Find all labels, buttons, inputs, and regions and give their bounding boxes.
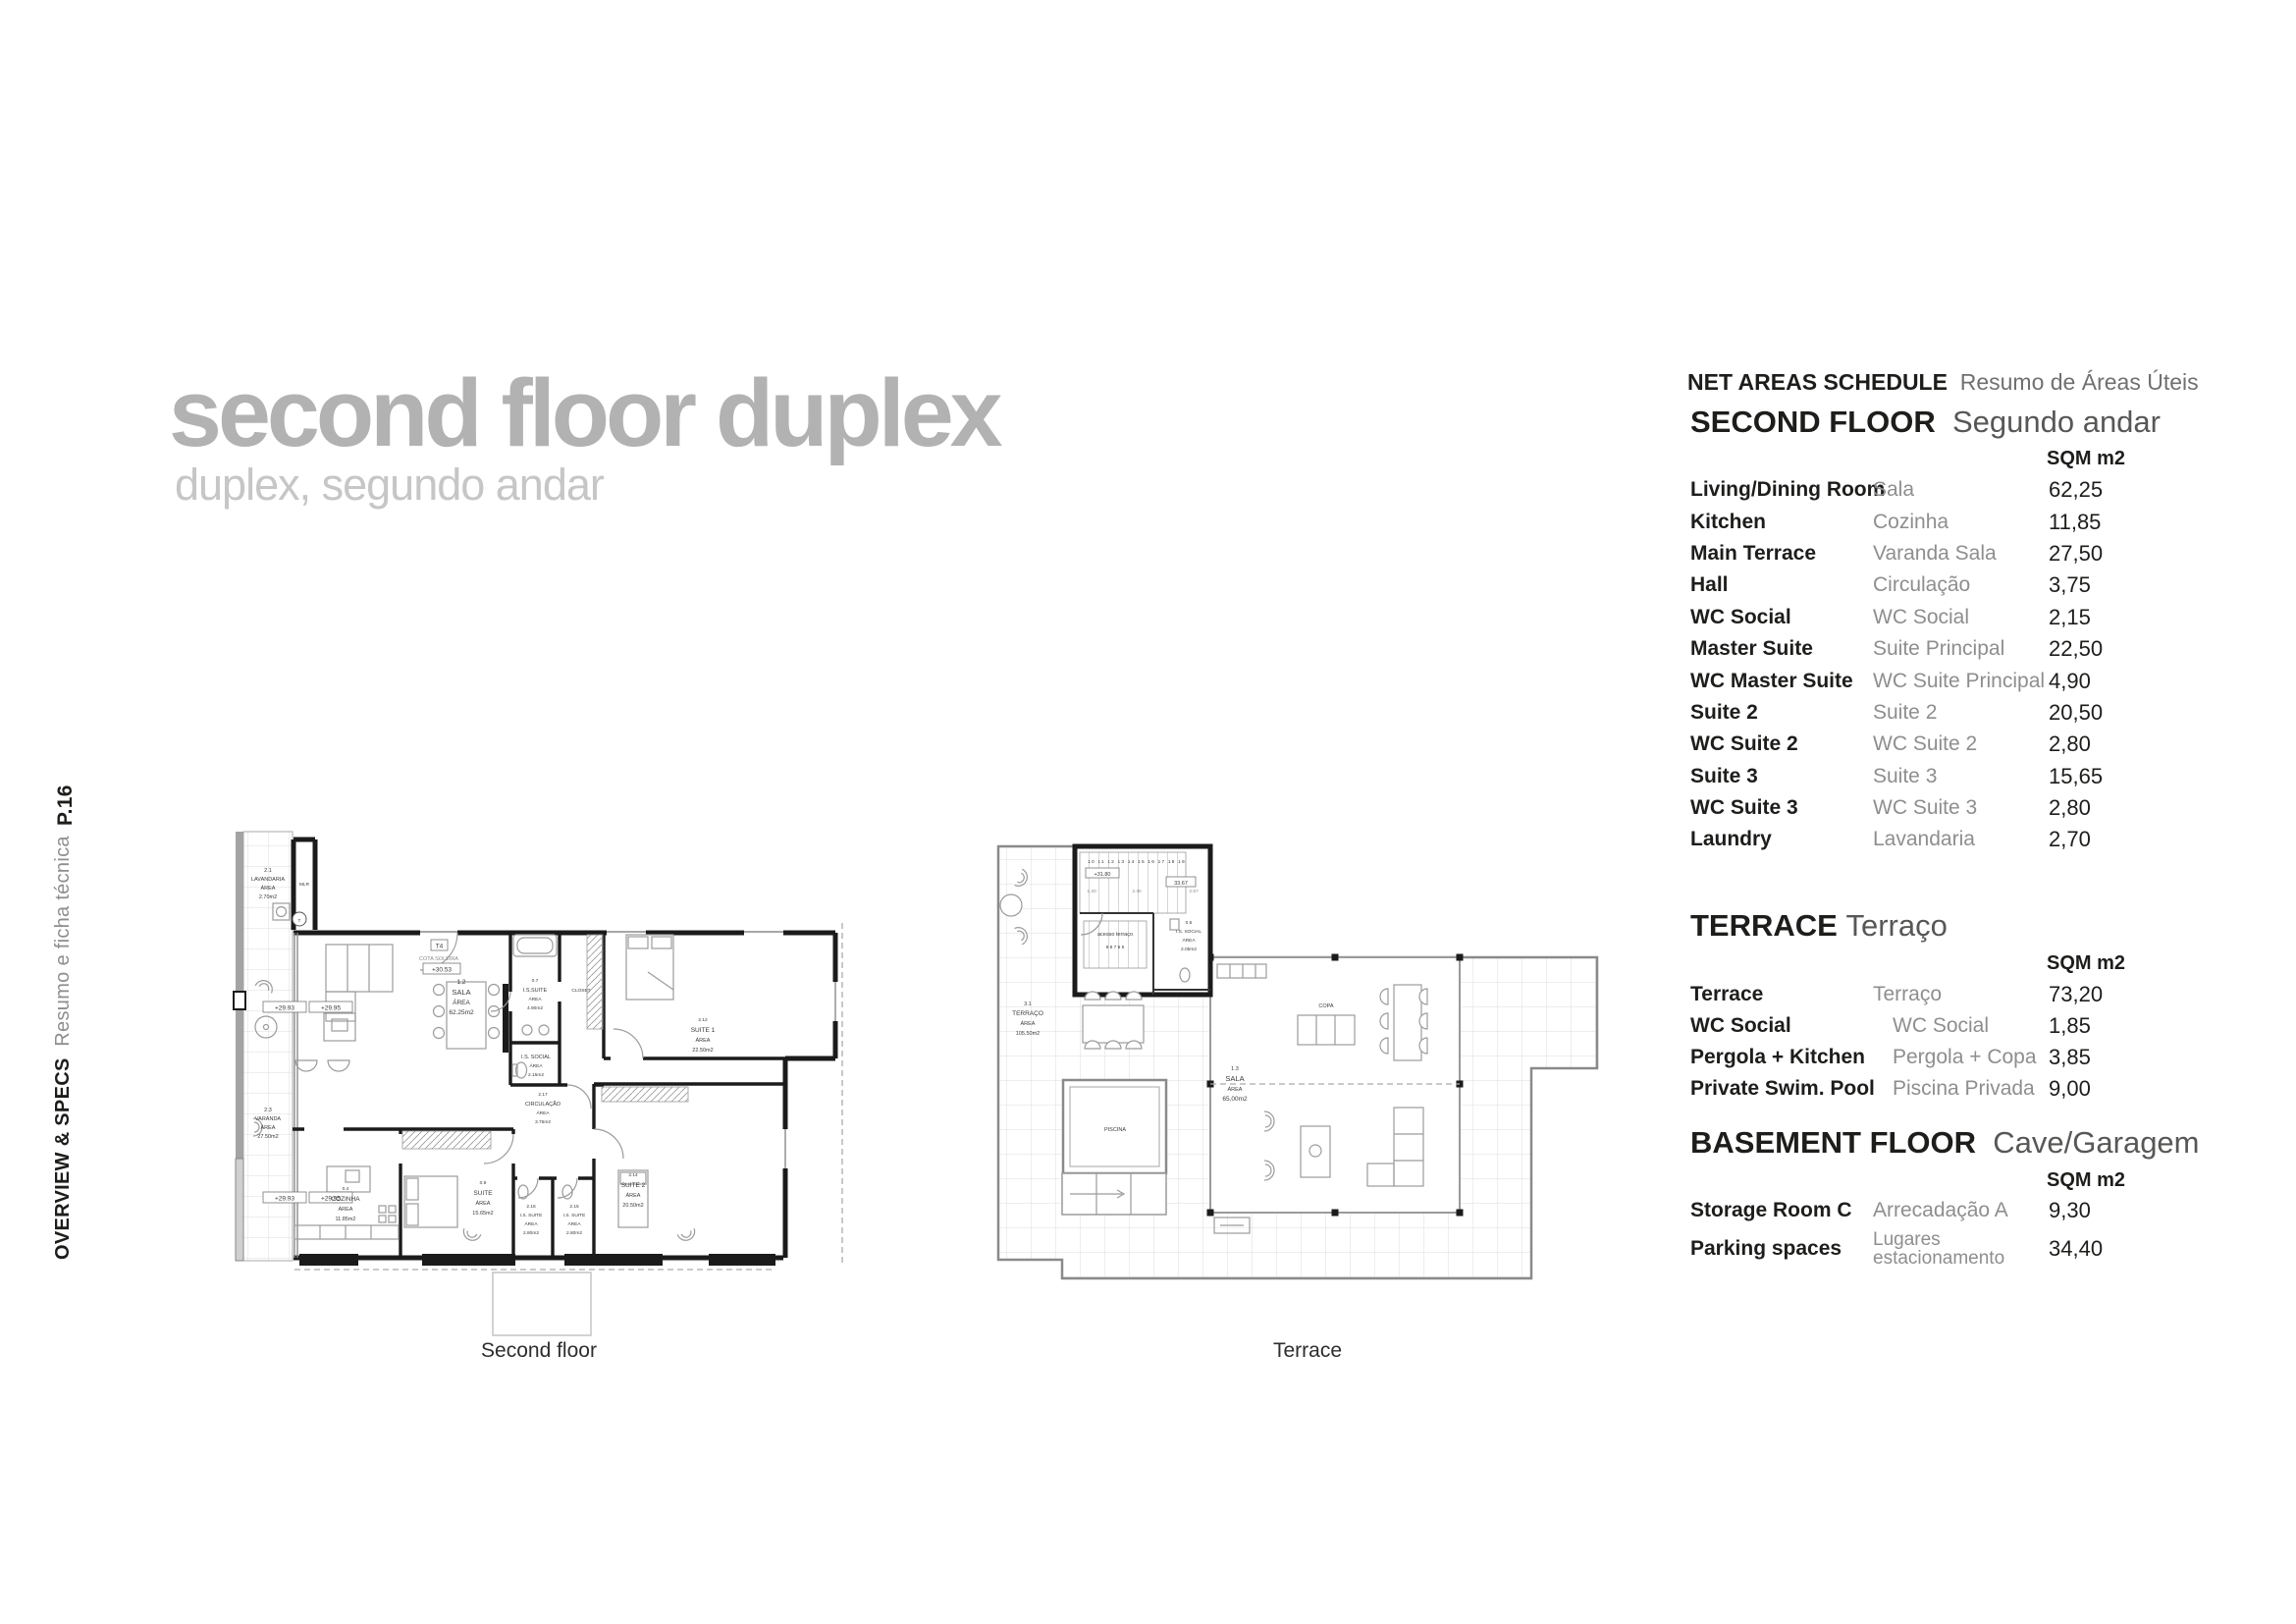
svg-text:ÁREA: ÁREA (1228, 1086, 1243, 1093)
svg-text:2.67: 2.67 (1189, 889, 1199, 894)
page-number: P.16 (54, 783, 78, 826)
room-name-pt: WC Social (1873, 1014, 2049, 1038)
table-row: WC Master SuiteWC Suite Principal4,90 (1690, 665, 2279, 696)
svg-text:VARANDA: VARANDA (255, 1116, 282, 1122)
sidebar-section-label: OVERVIEW & SPECS Resumo e ficha técnica (52, 892, 75, 1260)
svg-text:T: T (298, 918, 301, 924)
section-title-terrace: TERRACE Terraço (1690, 908, 1948, 944)
svg-text:0.4: 0.4 (343, 1186, 349, 1192)
table-row: Storage Room CArrecadação A9,30 (1690, 1195, 2279, 1226)
svg-text:ÁREA: ÁREA (476, 1200, 491, 1207)
svg-text:ÁREA: ÁREA (626, 1192, 641, 1199)
dim-badge: 33.67 (1174, 881, 1188, 887)
room-area-value: 2,80 (2049, 731, 2279, 757)
table-row: WC SocialWC Social1,85 (1690, 1010, 2279, 1042)
section-title-basement: BASEMENT FLOOR Cave/Garagem (1690, 1125, 2200, 1161)
outdoor-dining-table (1083, 1005, 1144, 1043)
room-area-value: 73,20 (2049, 982, 2279, 1007)
table-row: Living/Dining RoomSala62,25 (1690, 474, 2279, 506)
svg-text:1.20: 1.20 (1087, 889, 1096, 894)
section-title-en: TERRACE (1690, 908, 1838, 943)
svg-text:2.05m2: 2.05m2 (1181, 947, 1197, 952)
svg-text:I.S. SUITE: I.S. SUITE (563, 1213, 586, 1218)
room-name-pt: Pergola + Copa (1873, 1046, 2049, 1069)
table-row: KitchenCozinha11,85 (1690, 506, 2279, 537)
table-row: WC Suite 3WC Suite 32,80 (1690, 792, 2279, 824)
svg-text:3.1: 3.1 (1024, 1001, 1032, 1007)
svg-text:T4: T4 (436, 944, 444, 950)
room-area-value: 11,85 (2049, 510, 2279, 535)
svg-text:ÁREA: ÁREA (261, 1124, 276, 1131)
floor-body (294, 931, 835, 1260)
svg-text:2.40: 2.40 (1132, 889, 1142, 894)
svg-text:1.3: 1.3 (1231, 1066, 1239, 1072)
brochure-page: second floor duplex duplex, segundo anda… (0, 0, 2296, 1624)
level-badge: +31.80 (1095, 872, 1111, 878)
plan-caption-second-floor: Second floor (431, 1339, 647, 1363)
room-name-pt: WC Suite Principal (1873, 670, 2049, 693)
section-title-second-floor: SECOND FLOOR Segundo andar (1690, 405, 2161, 440)
room-area-value: 9,00 (2049, 1076, 2279, 1102)
svg-text:MLR: MLR (299, 882, 310, 888)
svg-text:COTA SOLEIRA: COTA SOLEIRA (419, 956, 458, 962)
room-name-en: WC Social (1690, 606, 1873, 629)
svg-text:SUITE: SUITE (473, 1190, 493, 1197)
room-name-pt: Sala (1873, 478, 2049, 502)
swimming-pool: PISCINA (1062, 1080, 1166, 1215)
svg-text:+30.53: +30.53 (432, 967, 452, 974)
svg-text:0.5: 0.5 (1186, 920, 1193, 926)
svg-text:2.1: 2.1 (264, 868, 272, 874)
svg-text:+29.95: +29.95 (321, 1005, 341, 1012)
svg-text:2.3: 2.3 (264, 1108, 272, 1113)
room-area-value: 27,50 (2049, 541, 2279, 567)
svg-text:TERRAÇO: TERRAÇO (1012, 1010, 1043, 1017)
room-name-en: WC Suite 2 (1690, 732, 1873, 756)
room-name-en: WC Master Suite (1690, 670, 1873, 693)
room-area-value: 2,70 (2049, 827, 2279, 852)
room-name-en: Master Suite (1690, 637, 1873, 661)
room-name-en: Suite 2 (1690, 701, 1873, 725)
room-area-value: 62,25 (2049, 477, 2279, 503)
section-title-pt: Cave/Garagem (1993, 1125, 2199, 1160)
svg-text:22.50m2: 22.50m2 (692, 1048, 713, 1054)
page-title: second floor duplex (169, 365, 999, 460)
room-area-value: 9,30 (2049, 1198, 2279, 1223)
svg-text:CIRCULAÇÃO: CIRCULAÇÃO (525, 1101, 561, 1108)
table-row: Suite 2Suite 220,50 (1690, 697, 2279, 729)
basement-table: Storage Room CArrecadação A9,30 Parking … (1690, 1195, 2279, 1272)
svg-text:SUITE 1: SUITE 1 (691, 1027, 716, 1034)
svg-text:CLOSET: CLOSET (571, 988, 590, 994)
room-area-value: 3,85 (2049, 1045, 2279, 1070)
room-area-value: 3,75 (2049, 572, 2279, 598)
stair-block: 10 11 12 13 14 15 16 17 18 19 +31.80 33.… (1075, 846, 1210, 995)
room-name-en: WC Social (1690, 1014, 1873, 1038)
table-row: LaundryLavandaria2,70 (1690, 824, 2279, 855)
second-floor-table: Living/Dining RoomSala62,25 KitchenCozin… (1690, 474, 2279, 856)
svg-text:ÁREA: ÁREA (529, 1062, 543, 1069)
section-title-en: BASEMENT FLOOR (1690, 1125, 1976, 1160)
terrace-plan: 10 11 12 13 14 15 16 17 18 19 +31.80 33.… (989, 840, 1608, 1292)
room-area-value: 22,50 (2049, 636, 2279, 662)
svg-text:ÁREA: ÁREA (536, 1110, 550, 1116)
svg-text:ÁREA: ÁREA (453, 998, 470, 1006)
svg-text:2.14: 2.14 (628, 1172, 638, 1178)
room-name-pt: Varanda Sala (1873, 542, 2049, 566)
room-name-pt: Lavandaria (1873, 828, 2049, 851)
side-table (1000, 894, 1022, 916)
toilet (1180, 968, 1190, 982)
svg-text:1.2: 1.2 (456, 979, 465, 986)
svg-text:15.65m2: 15.65m2 (472, 1211, 493, 1217)
sqm-column-header: SQM m2 (2047, 953, 2125, 973)
table-row: WC Suite 2WC Suite 22,80 (1690, 729, 2279, 760)
svg-text:ÁREA: ÁREA (524, 1220, 538, 1227)
svg-text:I.S. SUITE: I.S. SUITE (520, 1213, 543, 1218)
section-title-pt: Terraço (1845, 908, 1947, 943)
svg-text:2.17: 2.17 (538, 1092, 548, 1098)
room-name-en: Private Swim. Pool (1690, 1077, 1873, 1101)
svg-text:2.80m2: 2.80m2 (523, 1230, 539, 1236)
sidebar-section-pt: Resumo e ficha técnica (52, 836, 74, 1046)
room-area-value: 34,40 (2049, 1236, 2279, 1262)
svg-text:+29.93: +29.93 (275, 1005, 294, 1012)
svg-text:SALA: SALA (452, 988, 470, 997)
svg-text:11.85m2: 11.85m2 (336, 1217, 356, 1222)
room-name-en: Storage Room C (1690, 1199, 1873, 1222)
svg-text:ÁREA: ÁREA (1182, 937, 1196, 944)
svg-text:ÁREA: ÁREA (339, 1206, 353, 1213)
table-row: Private Swim. PoolPiscina Privada9,00 (1690, 1073, 2279, 1105)
svg-text:ÁREA: ÁREA (261, 885, 276, 892)
room-name-en: Parking spaces (1690, 1237, 1873, 1261)
schedule-header-en: NET AREAS SCHEDULE (1687, 369, 1948, 395)
room-name-pt: Arrecadação A (1873, 1199, 2049, 1222)
room-name-pt: Terraço (1873, 983, 2049, 1006)
svg-text:2.15: 2.15 (569, 1204, 579, 1210)
room-name-en: Hall (1690, 573, 1873, 597)
svg-text:2.15m2: 2.15m2 (528, 1072, 544, 1078)
svg-text:ÁREA: ÁREA (1021, 1020, 1036, 1027)
svg-text:2.12: 2.12 (698, 1017, 708, 1023)
acesso-label: acesso terraço (1097, 932, 1133, 938)
table-row: Parking spacesLugares estacionamento34,4… (1690, 1226, 2279, 1272)
svg-text:2.70m2: 2.70m2 (259, 894, 277, 900)
room-name-en: Kitchen (1690, 511, 1873, 534)
svg-text:LAVANDARIA: LAVANDARIA (251, 877, 285, 883)
room-name-en: Terrace (1690, 983, 1873, 1006)
room-name-pt: Circulação (1873, 573, 2049, 597)
room-name-en: Laundry (1690, 828, 1873, 851)
svg-text:ÁREA: ÁREA (528, 996, 542, 1002)
sidebar-section-en: OVERVIEW & SPECS (52, 1057, 74, 1260)
room-name-en: WC Suite 3 (1690, 796, 1873, 820)
room-area-value: 2,80 (2049, 795, 2279, 821)
tread-numbers-lower: 9 8 7 6 5 (1106, 945, 1125, 950)
room-area-value: 1,85 (2049, 1013, 2279, 1039)
stair-outline-below (493, 1272, 591, 1335)
svg-text:27.50m2: 27.50m2 (257, 1134, 278, 1140)
svg-text:ÁREA: ÁREA (567, 1220, 581, 1227)
svg-text:SUITE 2: SUITE 2 (621, 1182, 646, 1189)
room-area-value: 4,90 (2049, 669, 2279, 694)
room-name-pt: Lugares estacionamento (1873, 1230, 2030, 1268)
svg-text:SALA: SALA (1225, 1074, 1244, 1083)
table-row: Master SuiteSuite Principal22,50 (1690, 633, 2279, 665)
svg-text:62.25m2: 62.25m2 (449, 1009, 474, 1016)
table-row: HallCirculação3,75 (1690, 569, 2279, 601)
svg-text:COPA: COPA (1318, 1003, 1334, 1009)
table-row: Main TerraceVaranda Sala27,50 (1690, 538, 2279, 569)
svg-text:+29.93: +29.93 (275, 1196, 294, 1203)
room-name-pt: Cozinha (1873, 511, 2049, 534)
room-name-pt: WC Suite 3 (1873, 796, 2049, 820)
room-name-en: Main Terrace (1690, 542, 1873, 566)
svg-text:ÁREA: ÁREA (696, 1037, 711, 1044)
table-row: TerraceTerraço73,20 (1690, 979, 2279, 1010)
svg-text:105.50m2: 105.50m2 (1016, 1031, 1040, 1037)
terrace-table: TerraceTerraço73,20 WC SocialWC Social1,… (1690, 979, 2279, 1105)
svg-text:20.50m2: 20.50m2 (622, 1203, 643, 1209)
svg-text:I.S.SUITE: I.S.SUITE (523, 988, 548, 994)
svg-text:COZINHA: COZINHA (331, 1196, 360, 1203)
svg-text:PISCINA: PISCINA (1104, 1127, 1126, 1133)
second-floor-plan: +29.93 +29.95 +29.93 +29.95 T4 COTA SOLE… (231, 828, 851, 1343)
room-area-value: 15,65 (2049, 764, 2279, 789)
room-name-pt: Suite 3 (1873, 765, 2049, 788)
room-area-value: 20,50 (2049, 700, 2279, 726)
page-subtitle: duplex, segundo andar (175, 460, 604, 511)
table-row: Pergola + KitchenPergola + Copa3,85 (1690, 1042, 2279, 1073)
svg-text:I.S. SOCIAL: I.S. SOCIAL (1176, 929, 1201, 935)
svg-text:65,00m2: 65,00m2 (1222, 1096, 1248, 1103)
room-name-pt: Piscina Privada (1873, 1077, 2049, 1101)
room-name-en: Living/Dining Room (1690, 478, 1873, 502)
schedule-header: NET AREAS SCHEDULE Resumo de Áreas Úteis (1687, 370, 2199, 394)
room-area-value: 2,15 (2049, 605, 2279, 630)
sqm-column-header: SQM m2 (2047, 449, 2125, 468)
svg-text:4.90m2: 4.90m2 (527, 1005, 543, 1011)
sqm-column-header: SQM m2 (2047, 1170, 2125, 1190)
room-name-pt: WC Suite 2 (1873, 732, 2049, 756)
schedule-header-pt: Resumo de Áreas Úteis (1960, 369, 2199, 395)
section-title-en: SECOND FLOOR (1690, 405, 1936, 439)
stair-treads-lower (1084, 921, 1147, 968)
svg-text:3.75m2: 3.75m2 (535, 1119, 551, 1125)
svg-text:0.7: 0.7 (532, 978, 539, 984)
svg-text:2.80m2: 2.80m2 (566, 1230, 582, 1236)
room-name-en: Pergola + Kitchen (1690, 1046, 1873, 1069)
room-name-pt: Suite 2 (1873, 701, 2049, 725)
tread-numbers-upper: 10 11 12 13 14 15 16 17 18 19 (1088, 859, 1186, 865)
section-title-pt: Segundo andar (1952, 405, 2161, 439)
room-name-pt: WC Social (1873, 606, 2049, 629)
svg-text:2.16: 2.16 (526, 1204, 536, 1210)
table-row: WC SocialWC Social2,15 (1690, 602, 2279, 633)
table-row: Suite 3Suite 315,65 (1690, 761, 2279, 792)
svg-text:0.9: 0.9 (480, 1180, 487, 1186)
room-name-pt: Suite Principal (1873, 637, 2049, 661)
room-name-en: Suite 3 (1690, 765, 1873, 788)
svg-text:I.S. SOCIAL: I.S. SOCIAL (521, 1055, 551, 1060)
plan-caption-terrace: Terrace (1200, 1339, 1415, 1363)
